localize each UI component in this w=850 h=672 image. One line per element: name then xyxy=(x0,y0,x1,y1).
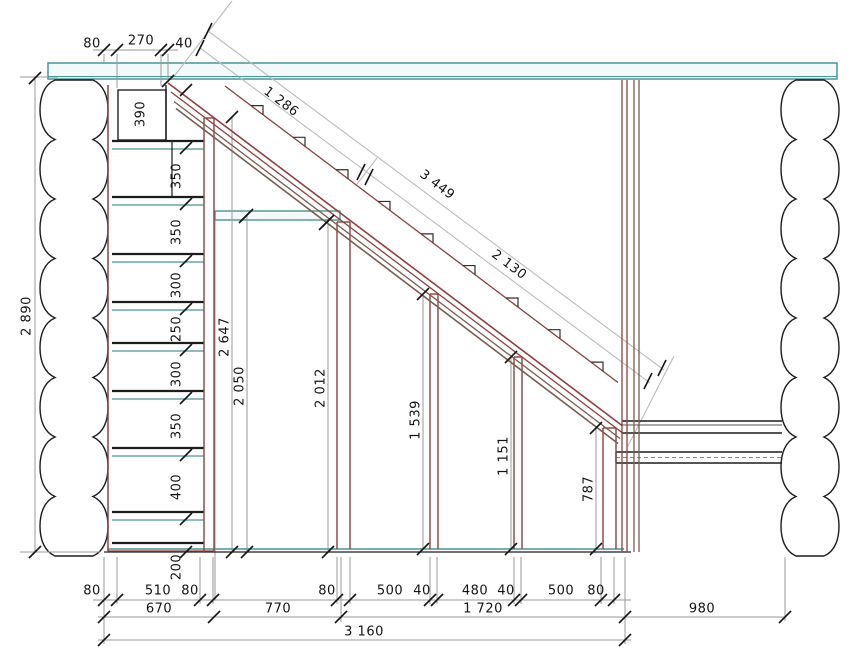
dim-total-770: 770 xyxy=(265,602,291,617)
dim-height-2647: 2 647 xyxy=(218,317,233,357)
dim-step-200: 200 xyxy=(170,554,185,580)
stringer-lower-board xyxy=(174,80,639,552)
right-log-wall xyxy=(781,80,839,556)
dim-top-270: 270 xyxy=(128,34,154,49)
dim-post-787: 787 xyxy=(582,476,597,502)
drawing-canvas xyxy=(0,0,850,672)
dim-post-1151: 1 151 xyxy=(497,436,512,476)
dim-bot-80c: 80 xyxy=(318,584,336,599)
dim-bot-500a: 500 xyxy=(377,584,403,599)
dim-total-980: 980 xyxy=(689,602,715,617)
stair-section-drawing: 80270401 2863 4492 1302 8903903503503002… xyxy=(0,0,850,672)
dim-bot-510: 510 xyxy=(145,584,171,599)
dim-overall-2890: 2 890 xyxy=(20,296,35,336)
dim-step-300a: 300 xyxy=(170,272,185,298)
dim-height-2012: 2 012 xyxy=(314,368,329,408)
dim-step-350b: 350 xyxy=(170,219,185,245)
dim-step-350a: 350 xyxy=(170,163,185,189)
dim-step-350c: 350 xyxy=(170,413,185,439)
dim-bot-500b: 500 xyxy=(548,584,574,599)
dim-step-400: 400 xyxy=(170,474,185,500)
structure-lines xyxy=(104,85,782,552)
dim-total-670: 670 xyxy=(146,602,172,617)
dim-step-300b: 300 xyxy=(170,361,185,387)
dim-height-2050: 2 050 xyxy=(233,366,248,406)
dim-bot-80d: 80 xyxy=(587,584,605,599)
dim-bot-480: 480 xyxy=(462,584,488,599)
wood-frame-lines xyxy=(108,80,627,552)
dim-total-1720: 1 720 xyxy=(463,602,503,617)
dim-top-40: 40 xyxy=(175,37,193,52)
dim-bot-80a: 80 xyxy=(83,584,101,599)
dim-top-80: 80 xyxy=(83,37,101,52)
dim-step-250: 250 xyxy=(170,316,185,342)
dim-post-1539: 1 539 xyxy=(409,400,424,440)
left-log-wall xyxy=(40,80,108,556)
dim-bot-40b: 40 xyxy=(497,584,515,599)
dim-bot-80b: 80 xyxy=(181,584,199,599)
dim-total-3160: 3 160 xyxy=(344,625,384,640)
tread-shelf-lines xyxy=(48,77,837,550)
dim-bot-40a: 40 xyxy=(413,584,431,599)
dim-step-390: 390 xyxy=(134,101,149,127)
